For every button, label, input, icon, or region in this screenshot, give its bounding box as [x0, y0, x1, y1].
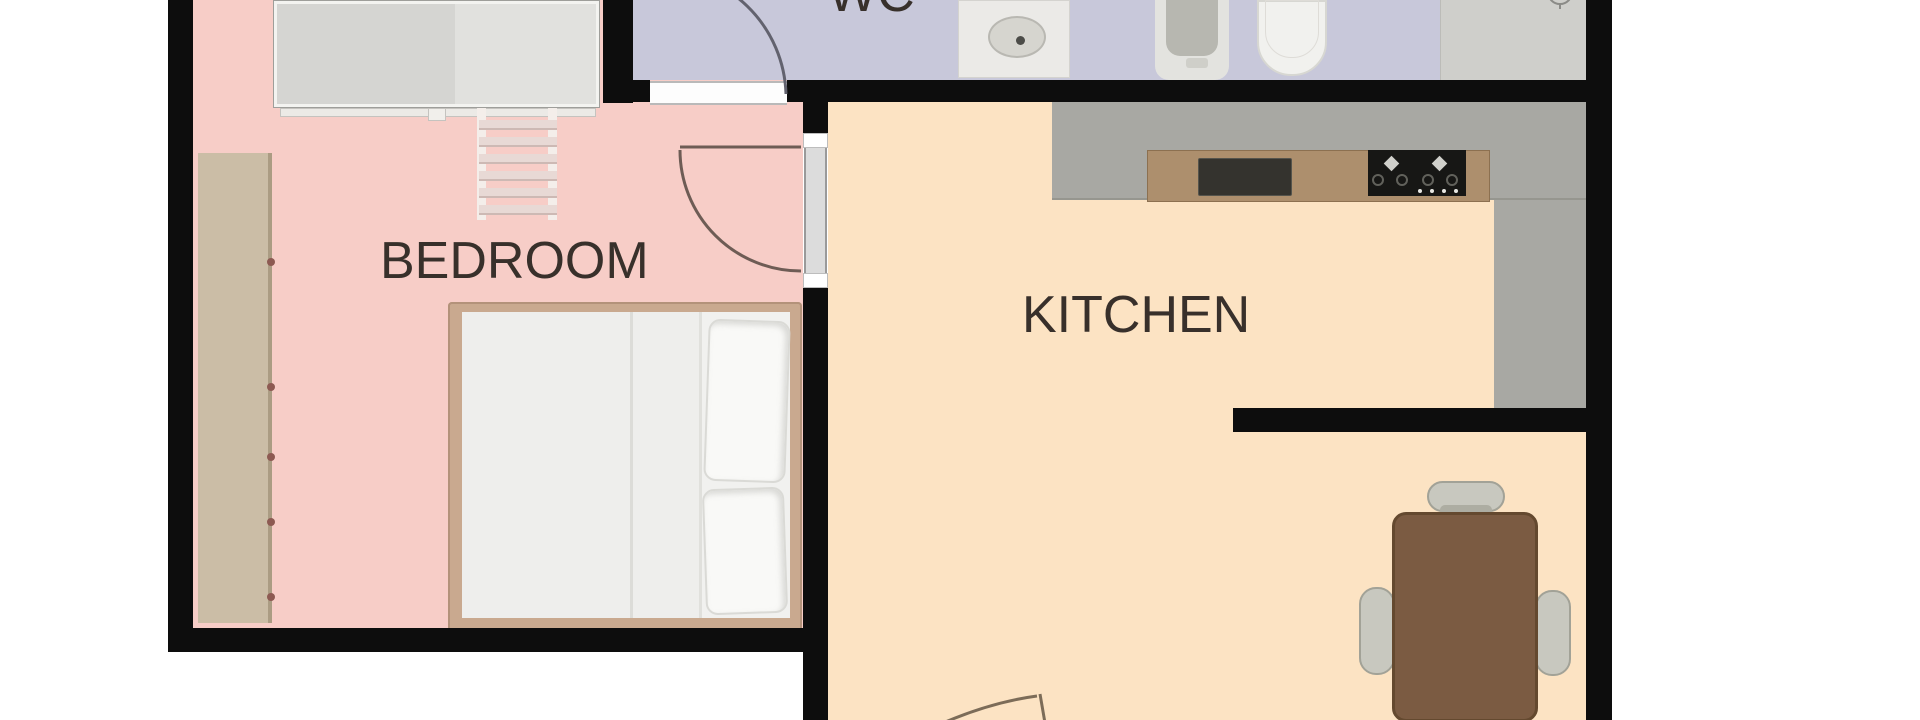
- shelf-knob: [267, 453, 275, 461]
- kitchen-label: KITCHEN: [1022, 287, 1250, 344]
- kitchen-counter-side: [1494, 200, 1586, 408]
- hob-burner-ring: [1446, 174, 1458, 186]
- ladder-rung: [479, 171, 557, 181]
- toilet-flush: [1186, 58, 1208, 68]
- bidet-rim: [1265, 0, 1319, 58]
- pillow: [703, 319, 791, 484]
- ladder-rung: [479, 137, 557, 147]
- wall-wc-south-right: [787, 80, 1612, 102]
- hob-burner-ring: [1396, 174, 1408, 186]
- hob-control-dot: [1418, 189, 1422, 193]
- ladder-rung: [479, 205, 557, 215]
- shower-head-icon: [1540, 0, 1584, 24]
- dining-table: [1392, 512, 1538, 720]
- floor-plan: BEDROOM KITCHEN WC: [0, 0, 1920, 720]
- wardrobe-door-panel: [455, 4, 596, 104]
- wc-label: WC: [828, 0, 915, 23]
- dining-chair: [1535, 590, 1571, 676]
- kitchen-sink: [1198, 158, 1292, 196]
- pillow: [702, 487, 788, 616]
- ladder-rung: [479, 120, 557, 130]
- door-jamb: [803, 273, 828, 288]
- shelf-knob: [267, 383, 275, 391]
- wall-right: [1586, 0, 1612, 720]
- wall-dining: [1233, 408, 1612, 432]
- shelf-unit: [198, 153, 272, 623]
- bedroom-doorway: [804, 135, 827, 288]
- dining-chair: [1359, 587, 1395, 675]
- shelf-knob: [267, 518, 275, 526]
- bed-duvet: [462, 312, 702, 618]
- toilet-bowl: [1166, 0, 1218, 56]
- shelf-knob: [267, 258, 275, 266]
- wall-wc-south-left: [603, 80, 650, 102]
- wall-bedroom-bottom: [168, 628, 828, 652]
- hob-control-dot: [1442, 189, 1446, 193]
- bedroom-label: BEDROOM: [380, 233, 649, 290]
- hob-burner-ring: [1422, 174, 1434, 186]
- shelf-knob: [267, 593, 275, 601]
- wall-bedroom-kitchen-upper: [803, 100, 828, 135]
- door-jamb: [803, 133, 828, 148]
- wc-doorway: [650, 81, 787, 105]
- duvet-fold: [630, 312, 633, 618]
- wall-left: [168, 0, 193, 652]
- wardrobe-handle: [428, 108, 446, 121]
- wall-bedroom-kitchen-lower: [803, 288, 828, 720]
- ladder-rung: [479, 188, 557, 198]
- hob-control-dot: [1430, 189, 1434, 193]
- ladder-rung: [479, 154, 557, 164]
- wc-sink-drain: [1016, 36, 1025, 45]
- hob-burner-knob: [1384, 156, 1400, 172]
- gas-hob: [1368, 150, 1466, 196]
- hob-burner-ring: [1372, 174, 1384, 186]
- hob-control-dot: [1454, 189, 1458, 193]
- hob-burner-knob: [1432, 156, 1448, 172]
